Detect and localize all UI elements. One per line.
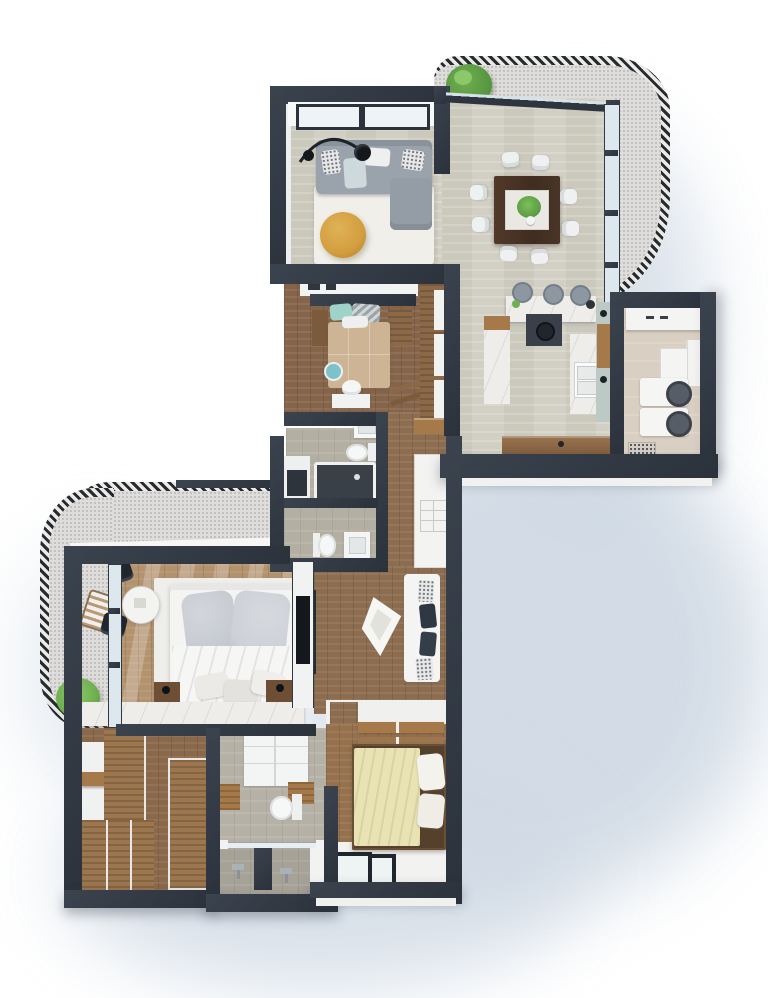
master-wall-tv (296, 596, 310, 664)
wall-hall-right (446, 436, 462, 904)
dining-chair (531, 249, 549, 265)
window-mullion (108, 608, 120, 614)
closet-unit-divider (130, 820, 132, 890)
glass-wall-post (434, 88, 446, 104)
wall-closet-bottom (64, 890, 216, 908)
wall-bedroom2-bottom (310, 882, 462, 898)
cooktop-hob (536, 322, 555, 341)
wall-kitchen-laundry (610, 298, 624, 458)
table-lamp (276, 684, 284, 692)
wall-bath1-bath2 (284, 498, 378, 508)
centerpiece-plant (517, 196, 541, 218)
sink-basin (577, 381, 597, 395)
table-lamp (162, 686, 170, 694)
laundry-counter (626, 308, 704, 330)
shelf-decor (308, 284, 320, 290)
bench-cushion (415, 657, 433, 680)
sofa-chaise (390, 178, 432, 230)
wall-lower-block-top (64, 546, 290, 564)
bed2-pillow (417, 793, 446, 829)
wall-closet-bath (206, 728, 220, 906)
island-plant-dot (512, 300, 520, 308)
sofa-pillow-speckled-2 (401, 149, 426, 172)
wall-bath1-top (284, 412, 386, 426)
closet-island (168, 758, 210, 890)
shower-head-stem (237, 870, 240, 879)
kitchen-cabinet-wood-cap (484, 316, 510, 330)
laundry-basket-cabinet (660, 348, 688, 380)
bath1-toilet-tank (368, 443, 376, 461)
bedside-bench-left (312, 310, 328, 346)
centerpiece-vase (526, 216, 535, 225)
dining-chair (532, 155, 550, 171)
dining-chair (500, 246, 518, 262)
glass-mullion (604, 150, 618, 156)
living-window (296, 104, 362, 130)
dining-chair (501, 151, 519, 167)
washer-door (666, 381, 692, 407)
closet-tall-unit (104, 728, 146, 822)
wall-upper-block-bottom (440, 454, 718, 478)
wall-living-bedroom1 (270, 264, 456, 284)
bath1-toilet (346, 444, 368, 461)
pale-band-shelf (597, 324, 611, 368)
floor-plan-stage (0, 0, 768, 998)
wall-lower-left (64, 546, 82, 908)
glass-mullion (604, 210, 618, 216)
pale-band-knob (600, 310, 607, 317)
floor-vase (303, 150, 314, 161)
window-mullion (108, 662, 120, 668)
counter-handle (660, 316, 668, 319)
bench-cushion (417, 580, 434, 603)
glass-mullion (604, 262, 618, 268)
bench-pillow-dark (419, 603, 437, 629)
living-window (362, 104, 430, 130)
bar-stool (543, 284, 564, 305)
master-toilet-tank (292, 794, 302, 820)
arc-lamp-shade (354, 144, 371, 161)
bedside-bench-right (388, 310, 412, 346)
master-window-wall (108, 564, 122, 728)
wall-face-under (446, 478, 712, 486)
dining-chair (560, 189, 577, 204)
bedroom2-shelf-bar (358, 722, 444, 733)
bath2-basin (349, 537, 366, 554)
closet-unit-divider (106, 820, 108, 890)
passage-wood-patch (330, 702, 358, 724)
closet-bottom-unit (82, 820, 154, 890)
bath-vanity-drawers (244, 730, 308, 786)
wall-bedroom1-right (444, 264, 460, 436)
island-bowl (586, 300, 595, 309)
dining-chair (470, 185, 487, 200)
tub-control (354, 474, 360, 480)
bed2-pillow (416, 753, 446, 792)
dining-chair (472, 217, 489, 232)
pale-band-knob (600, 376, 607, 383)
tea-table-decor (134, 598, 146, 608)
shower-head-stem (285, 874, 288, 883)
dining-chair (562, 221, 579, 236)
sideboard-decor (558, 441, 564, 447)
balcony-tree-highlight (454, 70, 472, 85)
bed1-pillow-white (342, 316, 368, 329)
dryer-door (666, 411, 692, 437)
shelf-decor (326, 284, 336, 290)
niche-appliance (287, 470, 307, 496)
sink-basin (577, 366, 597, 380)
wall-living-left (270, 86, 286, 282)
bed2-duvet (354, 748, 420, 846)
wall-laundry-right (700, 292, 716, 474)
wall-bath-bedroom2 (324, 786, 338, 886)
cabinet-shelf-grid (420, 500, 448, 532)
bedroom1-round-rug (324, 362, 343, 381)
bedroom1-desk (332, 394, 370, 408)
wall-bath-hall (376, 412, 388, 570)
bench-pillow-dark (419, 631, 437, 656)
wall-face-under (316, 898, 456, 906)
round-pouf (320, 212, 366, 258)
shower-glass-partition (218, 842, 326, 848)
desk-chair (342, 380, 361, 395)
master-toilet (270, 796, 293, 820)
counter-handle (646, 316, 654, 319)
shower-divider-column (254, 848, 272, 890)
glass-wall-dining-right (604, 104, 620, 304)
bath2-toilet (318, 534, 336, 557)
